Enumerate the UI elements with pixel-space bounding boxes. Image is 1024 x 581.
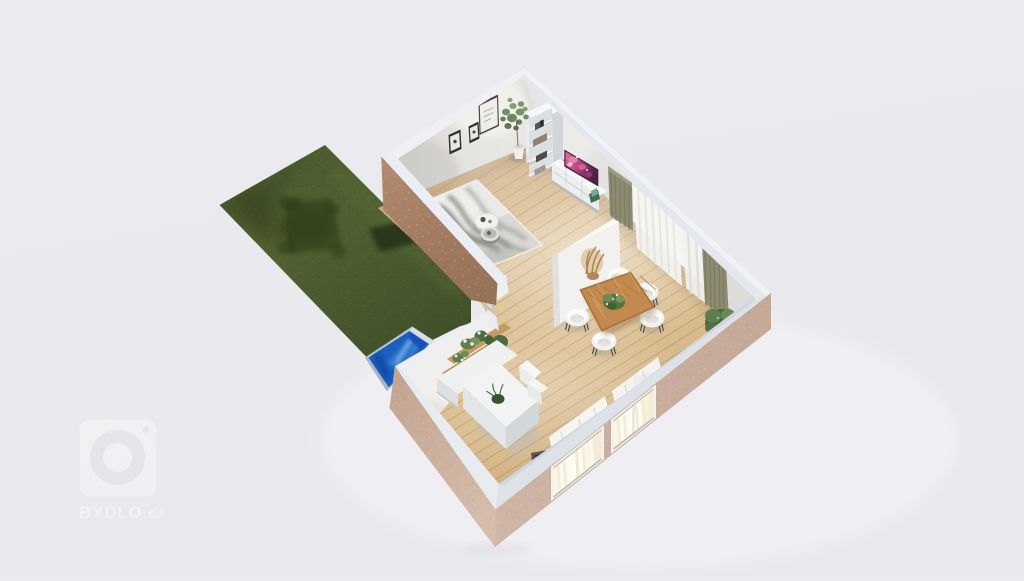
svg-text:BYDLO.cz: BYDLO.cz	[79, 503, 165, 522]
